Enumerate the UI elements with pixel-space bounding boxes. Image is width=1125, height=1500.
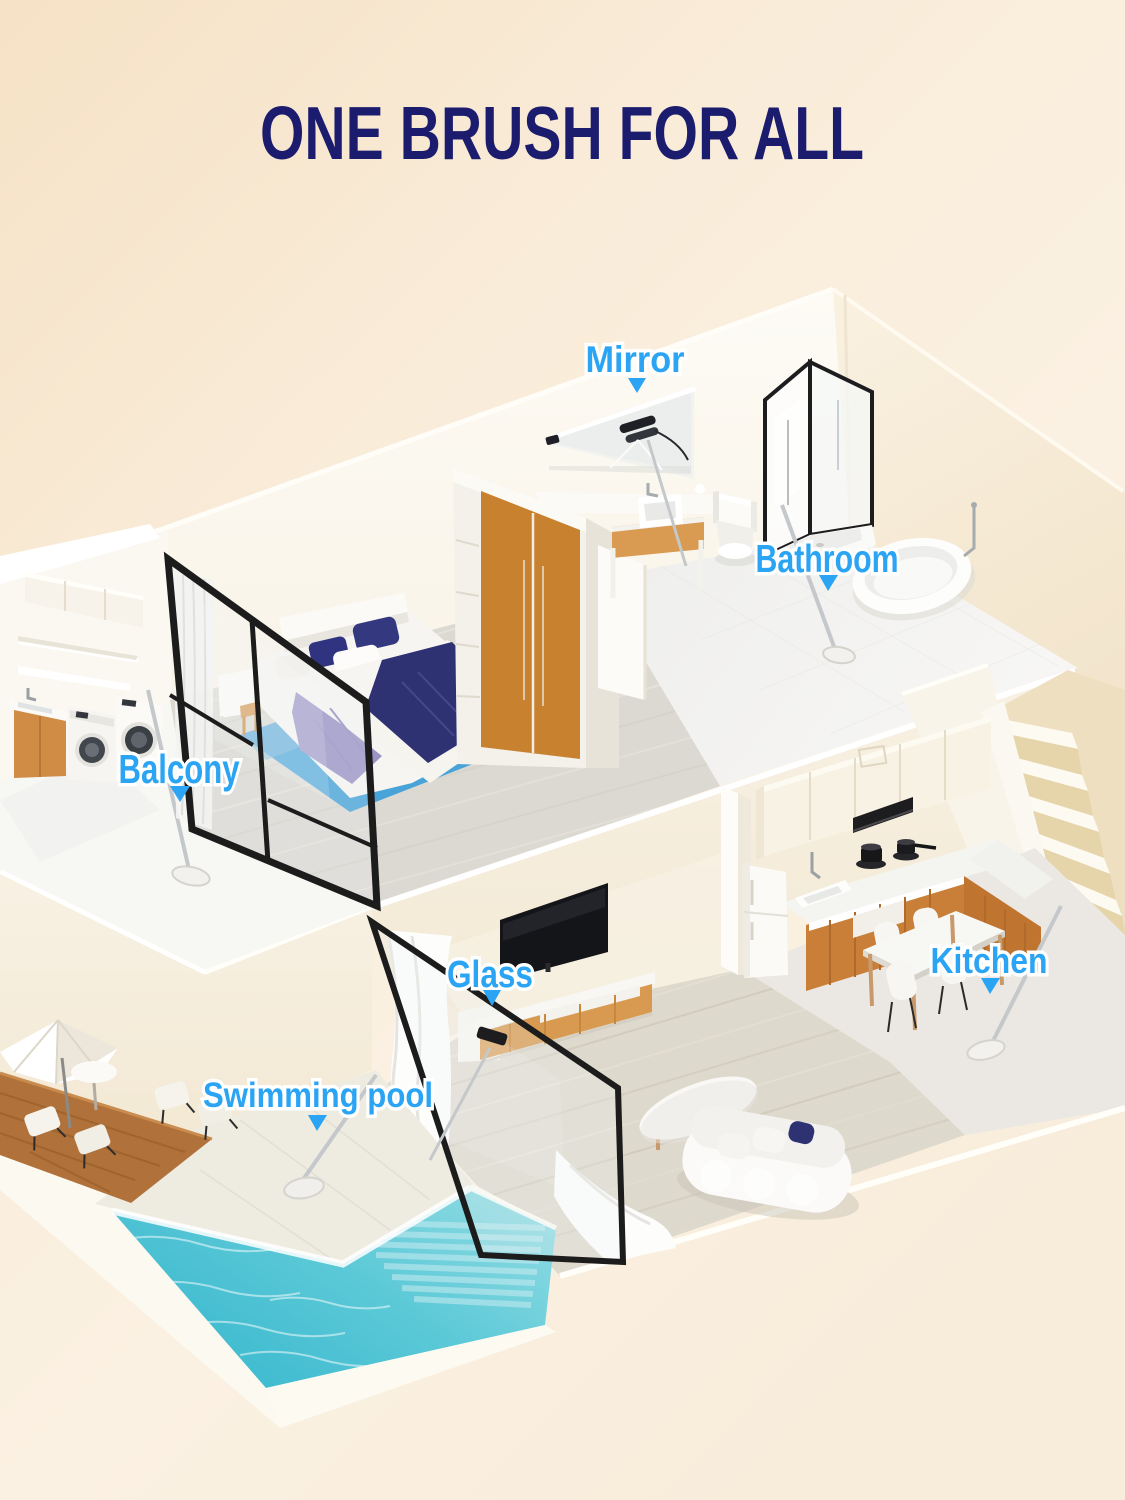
svg-text:Glass: Glass: [447, 954, 533, 996]
svg-text:Bathroom: Bathroom: [756, 538, 899, 581]
svg-text:Swimming pool: Swimming pool: [203, 1076, 433, 1115]
svg-text:Mirror: Mirror: [586, 339, 685, 380]
svg-text:Kitchen: Kitchen: [931, 940, 1048, 981]
svg-text:ONE BRUSH FOR ALL: ONE BRUSH FOR ALL: [260, 91, 864, 175]
svg-text:Balcony: Balcony: [119, 746, 240, 792]
